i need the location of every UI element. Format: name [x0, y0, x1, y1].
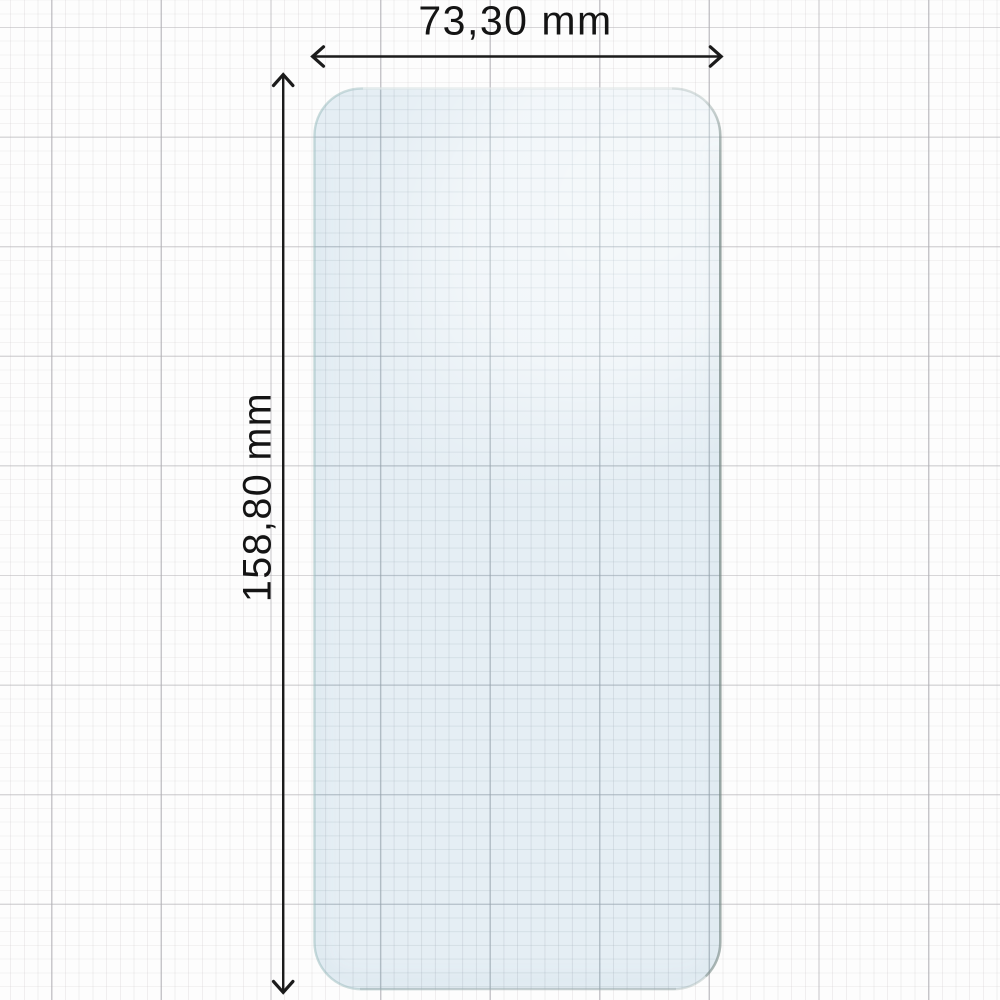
svg-text:73,30 mm: 73,30 mm: [418, 0, 612, 43]
svg-text:158,80 mm: 158,80 mm: [236, 392, 280, 602]
